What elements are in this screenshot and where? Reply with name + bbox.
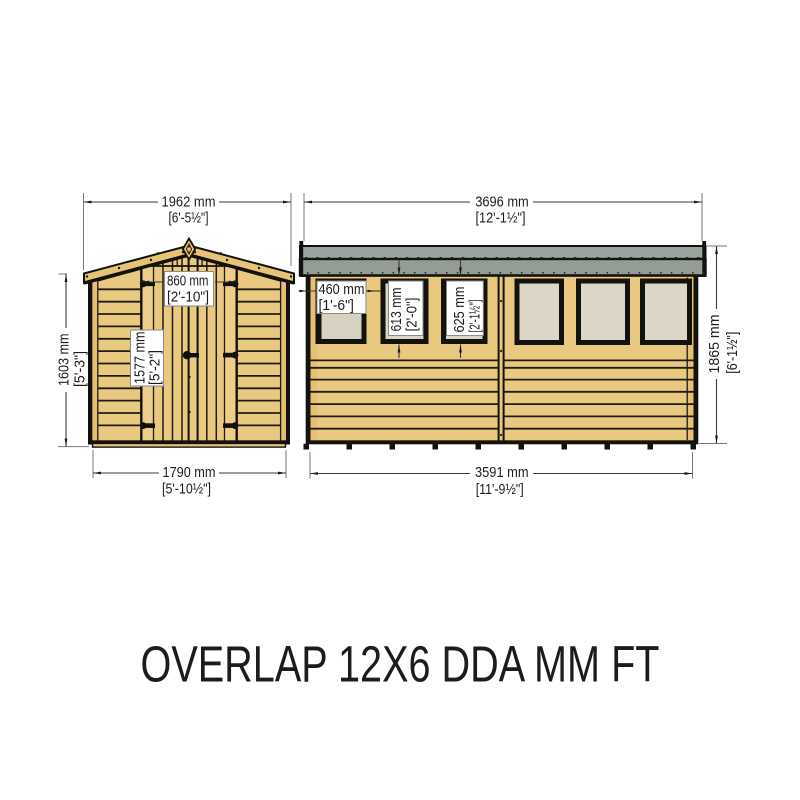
svg-text:1577 mm: 1577 mm	[133, 332, 149, 385]
svg-text:[2'-10"]: [2'-10"]	[167, 290, 209, 306]
svg-text:[11'-9½"]: [11'-9½"]	[476, 482, 524, 498]
svg-text:3696 mm: 3696 mm	[475, 195, 529, 211]
svg-text:1790 mm: 1790 mm	[163, 465, 216, 481]
svg-text:[2'-0"]: [2'-0"]	[405, 298, 421, 332]
svg-text:[1'-6"]: [1'-6"]	[319, 298, 354, 314]
svg-text:[6'-5½"]: [6'-5½"]	[169, 211, 209, 227]
svg-text:860 mm: 860 mm	[167, 274, 209, 290]
svg-text:[5'-3"]: [5'-3"]	[73, 351, 89, 387]
svg-text:[5'-2"]: [5'-2"]	[148, 350, 164, 385]
svg-text:1865 mm: 1865 mm	[707, 315, 723, 374]
svg-text:613 mm: 613 mm	[389, 288, 405, 332]
svg-text:[12'-1½"]: [12'-1½"]	[476, 211, 526, 227]
svg-text:OVERLAP 12X6 DDA MM FT: OVERLAP 12X6 DDA MM FT	[141, 636, 660, 693]
svg-text:625 mm: 625 mm	[452, 287, 468, 333]
svg-text:1603 mm: 1603 mm	[57, 334, 73, 387]
svg-text:3591 mm: 3591 mm	[475, 465, 529, 481]
svg-text:[2'-1½"]: [2'-1½"]	[468, 300, 484, 333]
svg-text:460 mm: 460 mm	[319, 282, 365, 298]
svg-text:[6'-1½"]: [6'-1½"]	[725, 332, 741, 374]
svg-text:1962 mm: 1962 mm	[162, 195, 216, 211]
svg-text:[5'-10½"]: [5'-10½"]	[162, 482, 211, 498]
